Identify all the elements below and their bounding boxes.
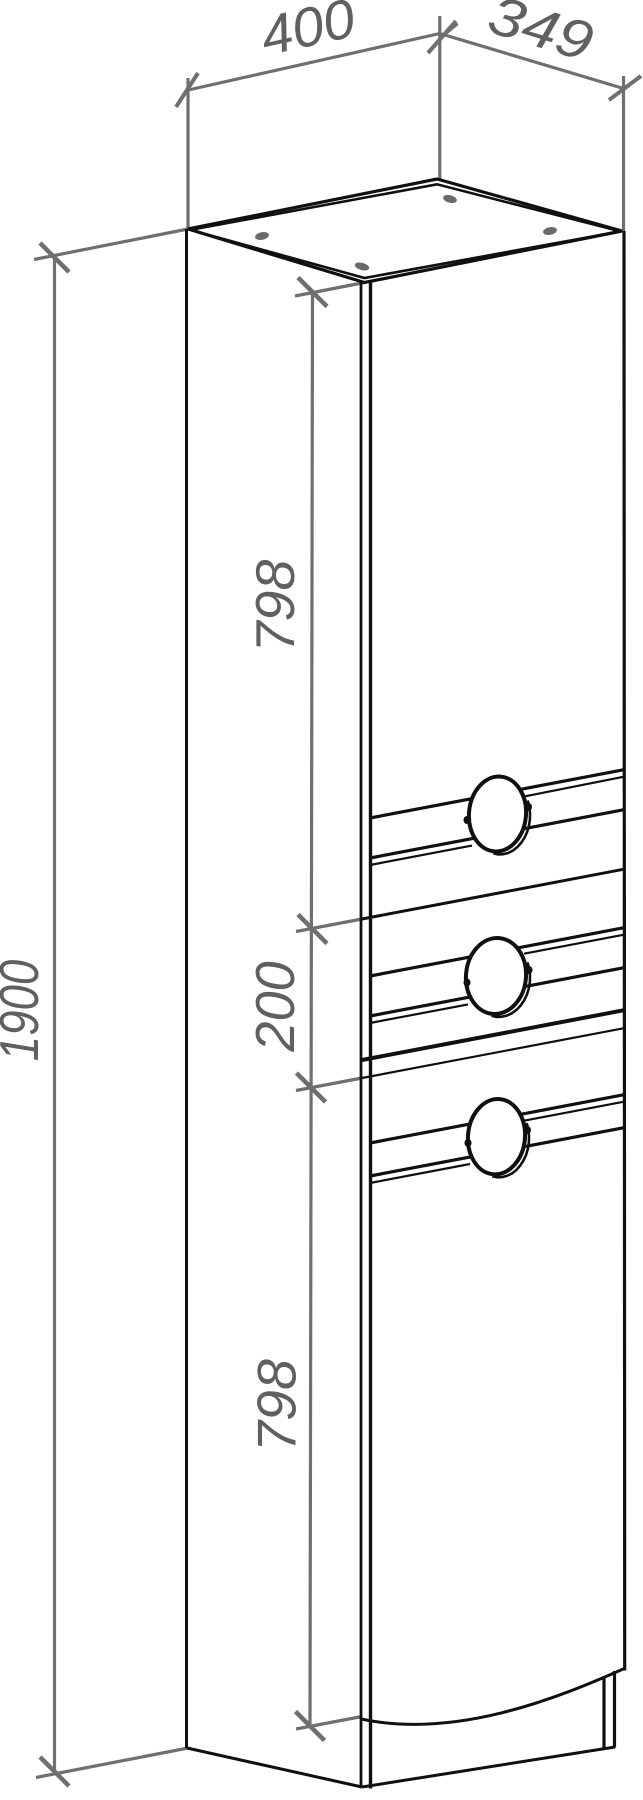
svg-text:798: 798: [246, 1359, 308, 1452]
svg-text:798: 798: [244, 559, 306, 652]
svg-text:200: 200: [245, 961, 306, 1052]
svg-text:1900: 1900: [0, 960, 50, 1062]
